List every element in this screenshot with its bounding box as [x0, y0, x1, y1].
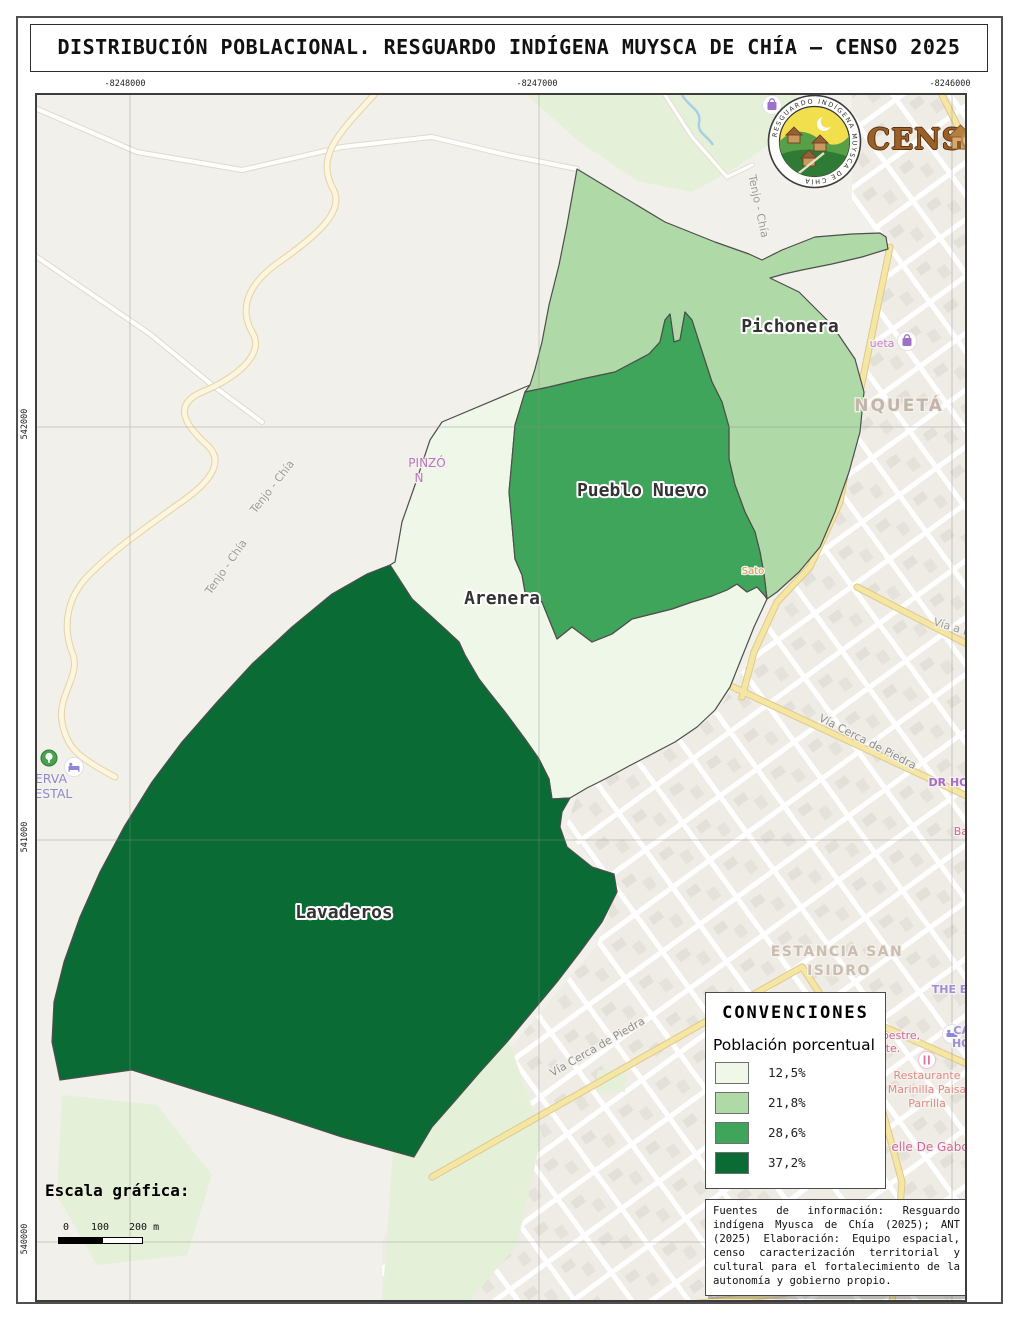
basemap-label: PINZÓ [408, 455, 445, 470]
basemap-label: NQUETÁ [854, 394, 944, 416]
legend-swatch [715, 1122, 749, 1144]
scale-bar-block: Escala gráfica: 0 100 200 m [45, 1181, 235, 1244]
basemap-label: RESTAL [37, 786, 72, 801]
legend-items: 12,5%21,8%28,6%37,2% [706, 1061, 885, 1174]
censo-magnifier-house-icon [945, 119, 967, 159]
legend-title: CONVENCIONES [706, 1003, 885, 1023]
legend-item: 37,2% [715, 1151, 885, 1174]
legend-label: 21,8% [768, 1095, 806, 1110]
basemap-label: DR HOU [929, 776, 967, 789]
scale-tick-200: 200 m [129, 1222, 159, 1233]
graticule-label-left: 541000 [20, 807, 30, 867]
basemap-label: ESTANCIA SAN [771, 944, 904, 960]
basemap-label: elle De Gabo [891, 1140, 967, 1154]
legend-item: 12,5% [715, 1061, 885, 1084]
basemap-label: Restaurante [894, 1069, 961, 1082]
region-label-pueblo-nuevo: Pueblo Nuevo [577, 480, 707, 501]
map-layout-page: DISTRIBUCIÓN POBLACIONAL. RESGUARDO INDÍ… [0, 0, 1020, 1320]
park-icon [41, 750, 57, 766]
basemap-label: Sato [742, 566, 765, 577]
basemap-label: CAT [953, 1024, 967, 1037]
scale-title: Escala gráfica: [45, 1181, 235, 1200]
legend-label: 12,5% [768, 1065, 806, 1080]
graticule-label-top: -8247000 [492, 79, 582, 89]
legend-label: 37,2% [768, 1155, 806, 1170]
shopping-bag-icon [898, 332, 917, 351]
basemap-label: ISIDRO [807, 963, 871, 979]
basemap-label: ueta [870, 337, 895, 350]
basemap-label: THE EMER [932, 983, 967, 996]
region-label-arenera: Arenera [464, 588, 540, 609]
region-label-pichonera: Pichonera [741, 316, 839, 337]
basemap-label: HOT [952, 1037, 967, 1050]
legend-swatch [715, 1062, 749, 1084]
basemap-label: Parrilla [908, 1097, 946, 1110]
source-info-box: Fuentes de información: Resguardo indíge… [705, 1199, 967, 1296]
scale-bar [58, 1237, 143, 1244]
graticule-label-top: -8248000 [80, 79, 170, 89]
graticule-label-left: 542000 [20, 394, 30, 454]
graticule-label-top: -8246000 [905, 79, 995, 89]
resguardo-emblem-logo: RESGUARDO INDÍGENA MUYSCA DE CHÍA [764, 93, 865, 192]
basemap-label: Barbe [954, 825, 967, 838]
legend-item: 28,6% [715, 1121, 885, 1144]
region-label-lavaderos: Lavaderos [295, 902, 393, 923]
legend-swatch [715, 1152, 749, 1174]
legend-label: 28,6% [768, 1125, 806, 1140]
basemap-label: pestre, [882, 1029, 920, 1042]
basemap-label: N [415, 471, 424, 485]
graticule-label-left: 540000 [20, 1209, 30, 1269]
basemap-label: Marinilla Paisa [888, 1083, 967, 1096]
basemap-label: SERVA [37, 771, 68, 786]
legend-item: 21,8% [715, 1091, 885, 1114]
scale-ticks: 0 100 200 m [45, 1222, 235, 1235]
legend-subtitle: Población porcentual [713, 1036, 885, 1054]
hotel-bed-icon [65, 758, 84, 777]
legend-box: CONVENCIONES Población porcentual 12,5%2… [705, 992, 886, 1189]
scale-tick-100: 100 [91, 1222, 109, 1233]
map-canvas: Tenjo - ChíaTenjo - ChíaTenjo - ChíaCaPI… [35, 93, 967, 1302]
basemap-label: te. [886, 1042, 901, 1055]
scale-tick-0: 0 [63, 1222, 69, 1233]
legend-swatch [715, 1092, 749, 1114]
restaurant-icon [919, 1052, 936, 1069]
map-title: DISTRIBUCIÓN POBLACIONAL. RESGUARDO INDÍ… [30, 24, 988, 72]
